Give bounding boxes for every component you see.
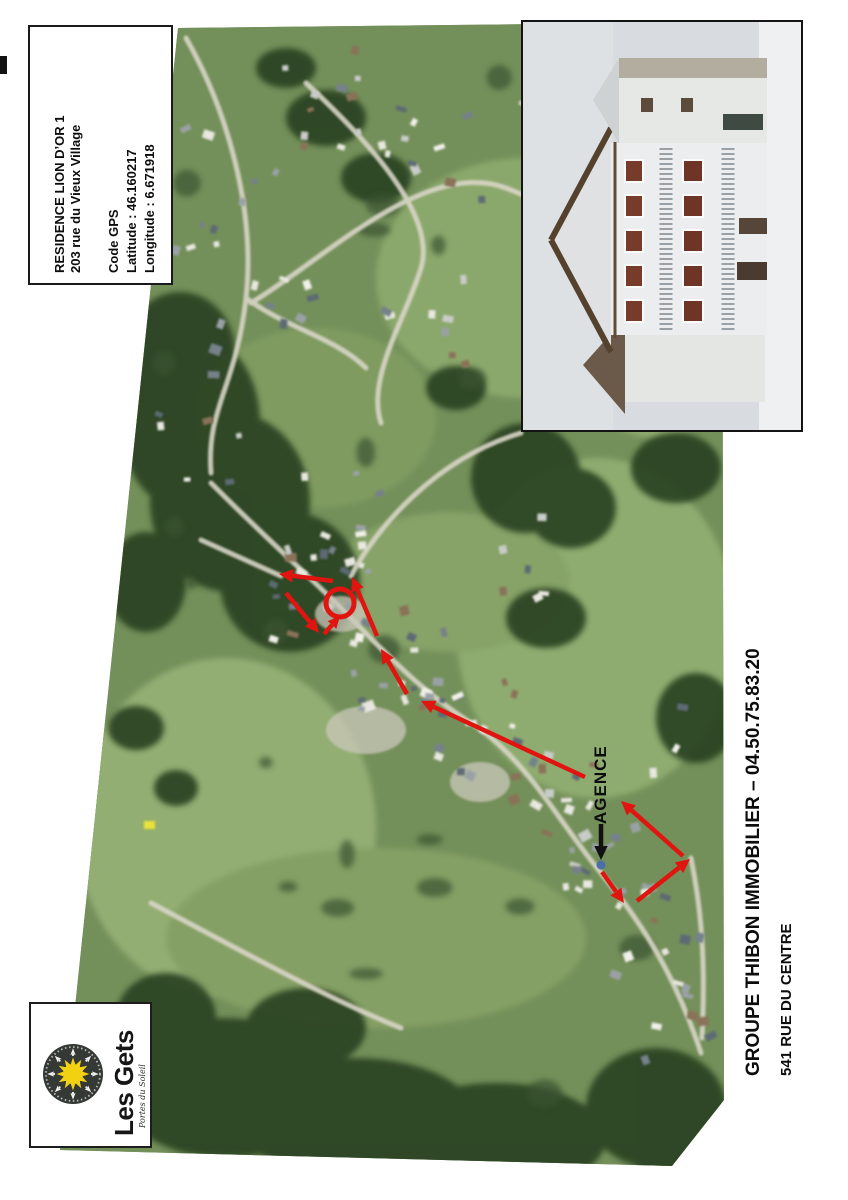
les-gets-emblem-icon [41, 1042, 105, 1106]
gps-heading: Code GPS [105, 25, 123, 273]
stone-wall [619, 58, 767, 78]
les-gets-tagline: Portes du Soleil [137, 1066, 148, 1128]
scanned-access-map-page: AGENCE [0, 0, 848, 1200]
agence-label: AGENCE [587, 744, 615, 824]
destination-circle [326, 589, 354, 617]
annex-building [619, 328, 765, 402]
agency-location-dot [597, 861, 606, 870]
residence-address: 203 rue du Vieux Village [68, 25, 84, 273]
residence-title: RESIDENCE LION D’OR 1 [52, 25, 68, 273]
scan-artifact [0, 56, 7, 74]
agency-street: 541 RUE DU CENTRE [778, 652, 796, 1076]
gps-latitude: Latitude : 46.160217 [123, 25, 141, 273]
les-gets-logo-box: Les Gets Portes du Soleil [29, 1002, 152, 1148]
residence-photo [523, 22, 801, 430]
agency-name-phone: GROUPE THIBON IMMOBILIER – 04.50.75.83.2… [742, 652, 766, 1076]
residence-photo-inset [521, 20, 803, 432]
residence-info-box: RESIDENCE LION D’OR 1 203 rue du Vieux V… [28, 25, 173, 285]
gps-longitude: Longitude : 6.671918 [141, 25, 159, 273]
agency-footer: GROUPE THIBON IMMOBILIER – 04.50.75.83.2… [736, 652, 824, 1076]
